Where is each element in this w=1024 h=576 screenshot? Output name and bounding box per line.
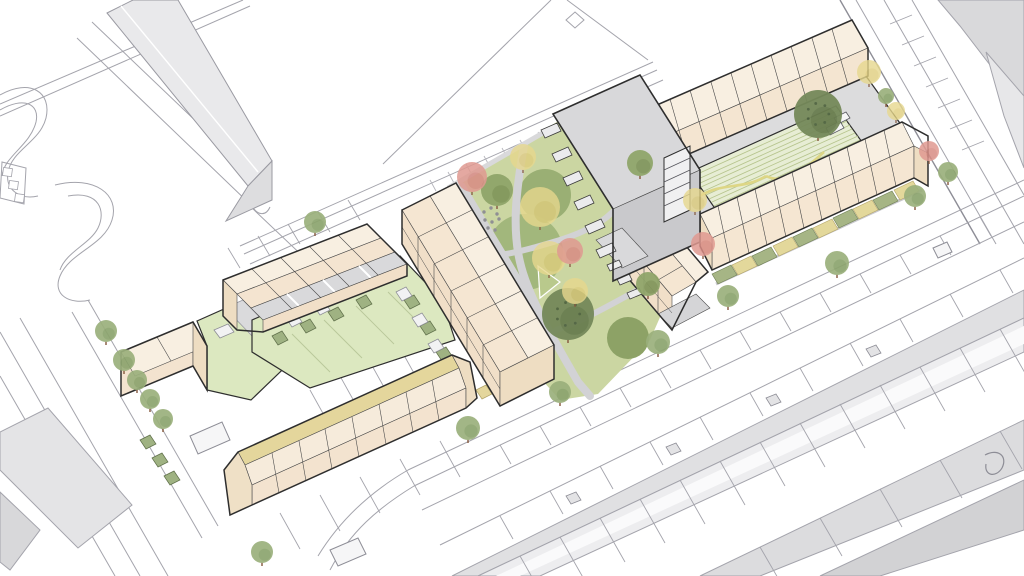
park-bigtree-canopy-shade bbox=[560, 306, 589, 335]
street-tree-s4-canopy-shade bbox=[725, 293, 737, 305]
ne-tree-yellow-1-canopy-shade bbox=[865, 68, 878, 81]
street-tree-w4 bbox=[140, 389, 160, 412]
street-tree-w1-canopy-shade bbox=[103, 328, 115, 340]
street-tree-s6 bbox=[904, 185, 926, 210]
tiny-plot-1 bbox=[2, 167, 12, 176]
park-tree-green-1-canopy-shade bbox=[492, 185, 510, 203]
street-tree-w3-canopy-shade bbox=[134, 377, 145, 388]
park-curve-1 bbox=[0, 88, 47, 197]
park-curve-3 bbox=[55, 182, 113, 301]
sheds-olive-A bbox=[140, 435, 180, 485]
court-tree-yellow-canopy-shade bbox=[691, 196, 704, 209]
street-tree-s6-canopy-shade bbox=[912, 193, 924, 205]
park-curve-4 bbox=[60, 195, 101, 270]
street-tree-sw-canopy-shade bbox=[259, 549, 271, 561]
street-tree-s3 bbox=[646, 330, 670, 357]
park-tree-pink-1-canopy-shade bbox=[468, 173, 485, 190]
courtyard-bigtree-branch-dot bbox=[814, 123, 817, 126]
courtyard-bigtree-canopy-shade bbox=[811, 107, 837, 133]
site-plan-canvas bbox=[0, 0, 1024, 576]
park-tree-pink-2-canopy-shade bbox=[566, 247, 580, 261]
courtyard-bigtree-branch-dot bbox=[807, 108, 810, 111]
street-tree-s1 bbox=[456, 416, 480, 443]
park-tree-yellow-4-canopy-shade bbox=[571, 287, 585, 301]
park-bigtree-branch-dot bbox=[556, 318, 559, 321]
park-tree-yellow-1-canopy-shade bbox=[519, 153, 533, 167]
plot-boundary-top bbox=[383, 0, 551, 164]
tiny-plot-2 bbox=[8, 180, 18, 189]
street-tree-north bbox=[304, 211, 326, 236]
courtyard-bigtree-branch-dot bbox=[823, 121, 826, 124]
street-tree-north-canopy-shade bbox=[312, 219, 324, 231]
courtyard-bigtree-branch-dot bbox=[814, 102, 817, 105]
park-tree-yellow-2-canopy-shade bbox=[534, 201, 556, 223]
white-hut-2 bbox=[330, 538, 366, 566]
lawn-mound-low bbox=[607, 317, 649, 359]
courtyard-bigtree-branch-dot bbox=[807, 117, 810, 120]
ne-tree-yellow-2-canopy-shade bbox=[893, 108, 903, 118]
street-tree-w1 bbox=[95, 320, 117, 345]
plot-boundary-top-2 bbox=[567, 0, 648, 60]
street-tree-s5 bbox=[825, 251, 849, 278]
court-tree-pink-canopy-shade bbox=[699, 240, 712, 253]
park-bigtree-branch-dot bbox=[564, 324, 567, 327]
courtyard-bigtree-branch-dot bbox=[827, 113, 830, 116]
ne-court-tree-canopy-shade bbox=[884, 94, 893, 103]
street-tree-s3-canopy-shade bbox=[654, 338, 667, 351]
park-bigtree-branch-dot bbox=[578, 313, 581, 316]
park-bigtree-branch-dot bbox=[564, 301, 567, 304]
courtyard-bigtree-branch-dot bbox=[823, 104, 826, 107]
street-tree-w5 bbox=[153, 409, 173, 432]
street-tree-s5-canopy-shade bbox=[833, 259, 846, 272]
street-tree-s7-canopy-shade bbox=[945, 169, 956, 180]
park-bigtree-branch-dot bbox=[556, 307, 559, 310]
street-tree-s4 bbox=[717, 285, 739, 310]
road-diamond bbox=[566, 12, 584, 28]
street-tree-w4-canopy-shade bbox=[147, 396, 158, 407]
street-tree-s2-canopy-shade bbox=[557, 389, 569, 401]
park-tree-green-2-canopy-shade bbox=[636, 159, 650, 173]
park-bigtree-branch-dot bbox=[574, 322, 577, 325]
white-hut-3 bbox=[933, 242, 952, 258]
street-tree-w2-canopy-shade bbox=[121, 357, 133, 369]
masterplan-illustration bbox=[0, 0, 1024, 576]
park-tree-green-3-canopy-shade bbox=[644, 280, 657, 293]
street-tree-s7 bbox=[938, 162, 958, 185]
white-hut-1 bbox=[190, 422, 230, 454]
street-tree-s1-canopy-shade bbox=[464, 424, 477, 437]
street-tree-w5-canopy-shade bbox=[160, 416, 171, 427]
tiny-plot-3 bbox=[14, 193, 24, 202]
ne-tree-pink-canopy-shade bbox=[926, 148, 937, 159]
street-tree-sw bbox=[251, 541, 273, 566]
